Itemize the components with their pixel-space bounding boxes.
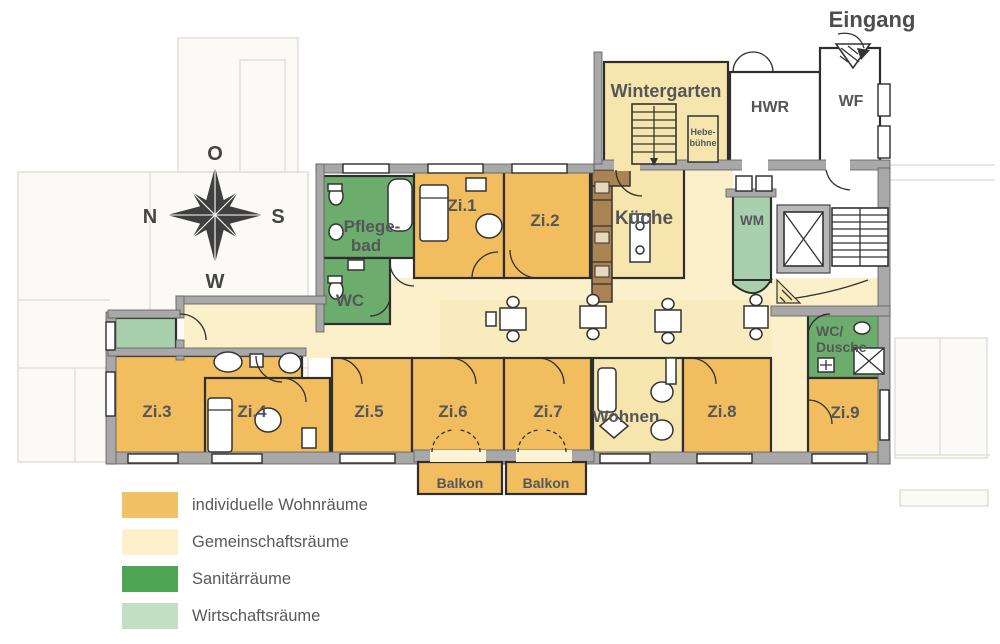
legend-item-sanitary: Sanitärräume [122,566,368,592]
label-zi7: Zi.7 [533,402,562,421]
label-zi8: Zi.8 [707,402,736,421]
legend: individuelle Wohnräume Gemeinschaftsräum… [122,492,368,640]
label-wc-dusche-2: Dusche [816,339,867,355]
legend-item-communal: Gemeinschaftsräume [122,529,368,555]
label-wm: WM [740,213,764,228]
compass-o: O [207,143,223,165]
label-zi9: Zi.9 [830,403,859,422]
staircase-wintergarten [632,104,676,166]
legend-label-individual: individuelle Wohnräume [192,496,368,515]
room-hwr [730,72,820,168]
label-kueche: Küche [615,208,673,229]
label-hebebuehne-1: Hebe- [690,127,715,137]
legend-item-utility: Wirtschaftsräume [122,603,368,629]
label-zi5: Zi.5 [354,402,383,421]
label-wc-dusche-1: WC/ [816,323,843,339]
legend-item-individual: individuelle Wohnräume [122,492,368,518]
label-balkon-2: Balkon [523,475,570,491]
label-pflegebad-2: bad [351,236,381,255]
entrance-label: Eingang [829,7,916,32]
legend-label-communal: Gemeinschaftsräume [192,533,349,552]
label-balkon-1: Balkon [437,475,484,491]
label-wc: WC [336,291,364,310]
label-wf: WF [839,93,864,110]
room-wm [733,195,771,282]
legend-swatch-utility [122,603,178,629]
label-wohnen: Wohnen [593,407,660,426]
floorplan: O N S W Eingang Wintergarten Hebe- bühne… [0,0,1000,644]
legend-swatch-communal [122,529,178,555]
compass-w: W [206,271,225,293]
legend-swatch-individual [122,492,178,518]
label-zi3: Zi.3 [142,402,171,421]
compass-n: N [143,206,157,228]
compass-s: S [271,206,284,228]
label-zi4: Zi.4 [237,402,267,421]
legend-label-utility: Wirtschaftsräume [192,607,320,626]
label-zi1: Zi.1 [447,196,476,215]
label-pflegebad-1: Pflege- [344,217,401,236]
label-wintergarten: Wintergarten [611,81,722,101]
legend-swatch-sanitary [122,566,178,592]
label-zi6: Zi.6 [438,402,467,421]
label-zi2: Zi.2 [530,211,559,230]
label-hwr: HWR [751,99,790,116]
label-hebebuehne-2: bühne [690,138,717,148]
legend-label-sanitary: Sanitärräume [192,570,291,589]
elevator [777,205,830,273]
